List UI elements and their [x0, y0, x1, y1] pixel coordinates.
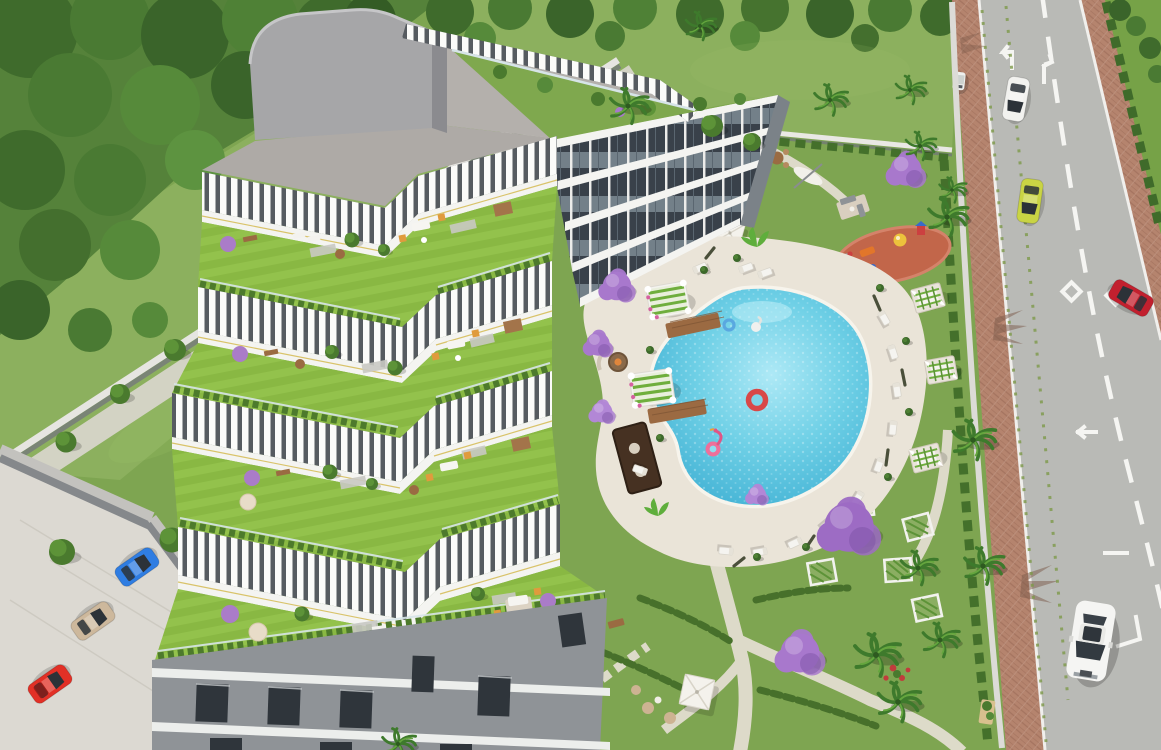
float-ring-red[interactable] [749, 392, 766, 409]
play-dome-yellow [894, 234, 907, 247]
aerial-render [0, 0, 1161, 750]
play-tower-red [917, 226, 925, 235]
